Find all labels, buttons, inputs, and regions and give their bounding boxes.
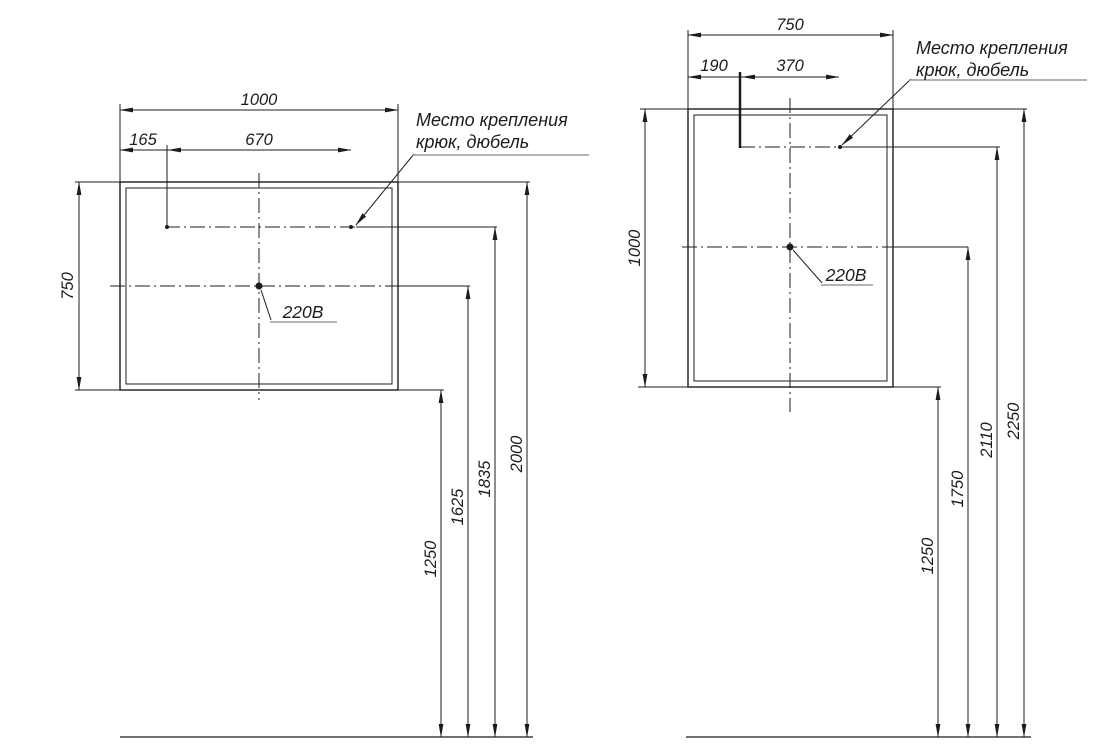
height-label-2110: 2110 (978, 421, 996, 458)
power-leader-line (793, 250, 822, 283)
mount-note-line2: крюк, дюбель (416, 132, 529, 152)
hook-offset-label: 165 (129, 131, 157, 149)
power-socket-point (256, 283, 263, 290)
height-label-2000: 2000 (508, 435, 526, 474)
mounting-diagram-svg: 1000 165 670 750 220В Место крепления кр… (0, 0, 1099, 755)
width-dimension-label: 1000 (241, 91, 279, 109)
hook-spacing-label: 370 (776, 57, 804, 75)
height-label-1250: 1250 (422, 540, 440, 578)
hook-spacing-label: 670 (245, 131, 273, 149)
mount-note-line1: Место крепления (916, 38, 1068, 58)
hook-point-right (838, 145, 842, 149)
width-dimension-label: 750 (776, 16, 804, 34)
power-label: 220В (825, 265, 867, 285)
mount-note-line1: Место крепления (416, 110, 568, 130)
height-label-1250: 1250 (919, 537, 937, 575)
diagram-canvas: 1000 165 670 750 220В Место крепления кр… (0, 0, 1099, 755)
left-drawing: 1000 165 670 750 220В Место крепления кр… (59, 91, 589, 737)
mount-note-line2: крюк, дюбель (916, 60, 1029, 80)
height-label-1835: 1835 (476, 460, 494, 498)
hook-offset-label: 190 (700, 57, 728, 75)
power-socket-point (787, 244, 794, 251)
height-dimension-label: 1000 (626, 229, 644, 267)
right-drawing: 750 190 370 1000 220В Место крепления кр… (626, 16, 1087, 737)
power-label: 220В (282, 302, 324, 322)
height-label-1750: 1750 (949, 470, 967, 508)
mount-leader-line (356, 154, 414, 225)
mount-leader-line (842, 79, 911, 145)
height-label-1625: 1625 (449, 488, 467, 526)
height-dimension-label: 750 (59, 271, 77, 299)
power-leader-line (261, 290, 271, 320)
hook-point-left (165, 225, 169, 229)
height-label-2250: 2250 (1005, 402, 1023, 441)
hook-point-right (349, 225, 353, 229)
